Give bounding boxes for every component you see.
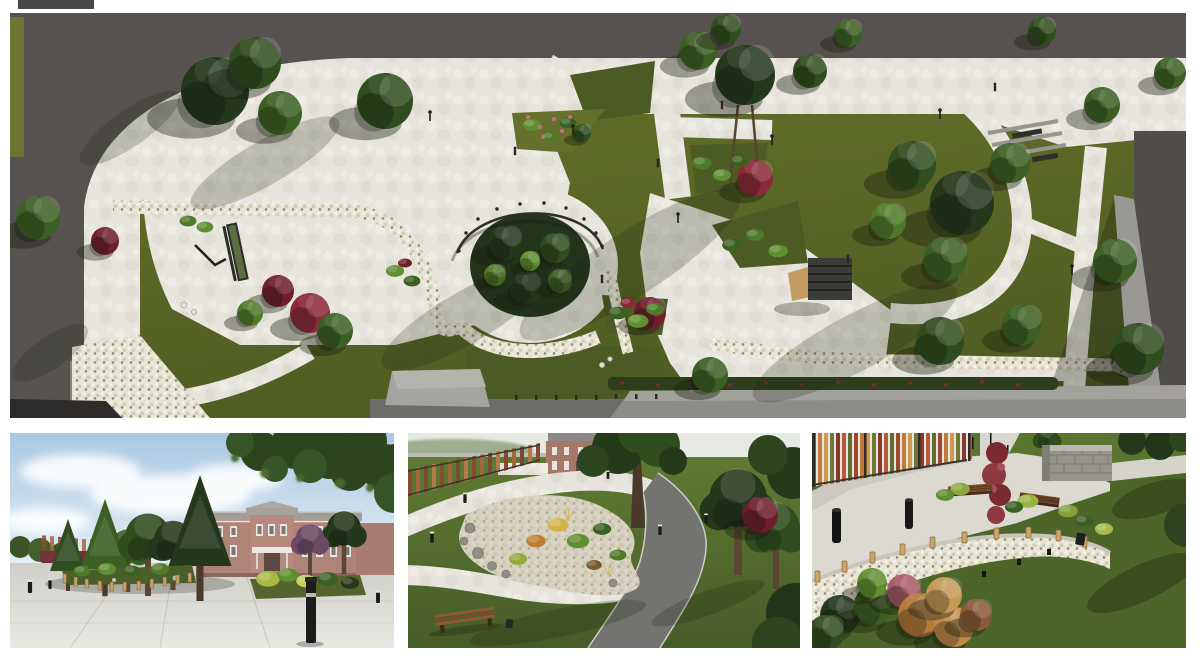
grass-verge <box>10 17 24 157</box>
stone-wall <box>1042 445 1112 481</box>
dark-block <box>10 399 122 418</box>
cropped-image-edge <box>18 0 94 9</box>
entrance-canopy <box>252 547 292 553</box>
dry-garden-render <box>812 433 1186 648</box>
entrance-plaza-render <box>10 433 394 648</box>
presentation-page <box>0 0 1200 658</box>
entrance-door <box>264 553 280 571</box>
bay-cornice <box>246 508 298 515</box>
aerial-plan-render <box>10 13 1186 418</box>
rock-garden-render <box>408 433 800 648</box>
